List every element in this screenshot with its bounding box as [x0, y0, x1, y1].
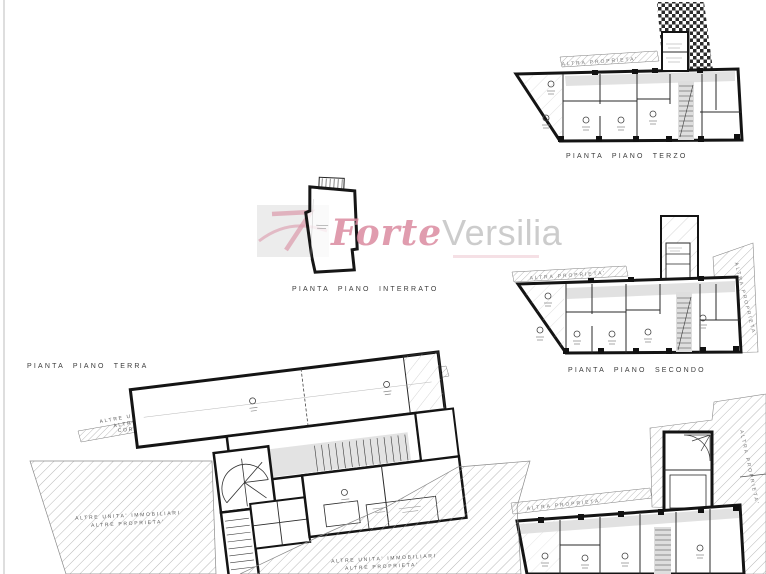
- title-piano-terra: PIANTA PIANO TERRA: [27, 363, 149, 370]
- tower-room: [666, 243, 690, 280]
- stair-shaft: [654, 527, 671, 574]
- side-room: [415, 409, 459, 461]
- tower: [662, 32, 688, 71]
- floorplan-drawing: ALTRA PROPRIETA' PIANTA PIANO TERZO ALTR…: [0, 0, 766, 574]
- service-rooms: [250, 497, 310, 548]
- hatch-region-bottom-left: ALTRE UNITA' IMMOBILIARI ALTRE PROPRIETA…: [30, 461, 216, 574]
- title-piano-interrato: PIANTA PIANO INTERRATO: [292, 286, 439, 293]
- plan-piano-terzo: ALTRA PROPRIETA' PIANTA PIANO TERZO: [516, 2, 742, 160]
- terrace-hatch: [518, 74, 562, 139]
- drawing-sheet: ALTRA PROPRIETA' PIANTA PIANO TERZO ALTR…: [0, 0, 766, 574]
- title-piano-secondo: PIANTA PIANO SECONDO: [568, 367, 706, 374]
- terrace-hatch: [520, 284, 564, 351]
- room-marker: [536, 327, 544, 340]
- plan-piano-interrato: [303, 177, 360, 274]
- plan-piano-primo: ALTRA PROPRIETA' ALTRA PROPRIETA': [511, 394, 766, 574]
- title-piano-terzo: PIANTA PIANO TERZO: [566, 153, 688, 160]
- building-outline: [303, 187, 360, 274]
- plan-piano-secondo: ALTRA PROPRIETA' ALTRA PROPRIETA' PIANTA…: [512, 216, 758, 374]
